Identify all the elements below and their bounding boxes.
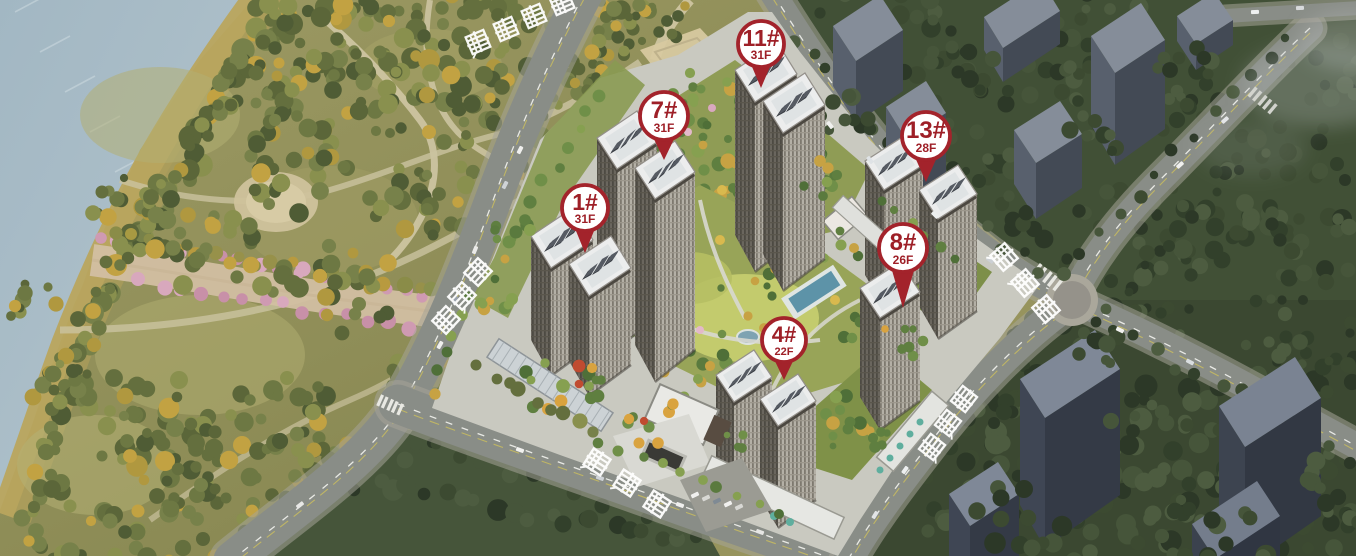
svg-text:8#: 8# — [890, 229, 917, 256]
svg-text:13#: 13# — [906, 117, 946, 144]
svg-text:31F: 31F — [654, 121, 675, 135]
svg-text:31F: 31F — [575, 212, 596, 226]
svg-text:31F: 31F — [751, 48, 772, 62]
svg-text:4#: 4# — [772, 322, 796, 347]
svg-text:26F: 26F — [893, 253, 914, 267]
svg-text:7#: 7# — [651, 97, 678, 124]
svg-text:22F: 22F — [775, 346, 794, 358]
svg-text:28F: 28F — [916, 141, 937, 155]
